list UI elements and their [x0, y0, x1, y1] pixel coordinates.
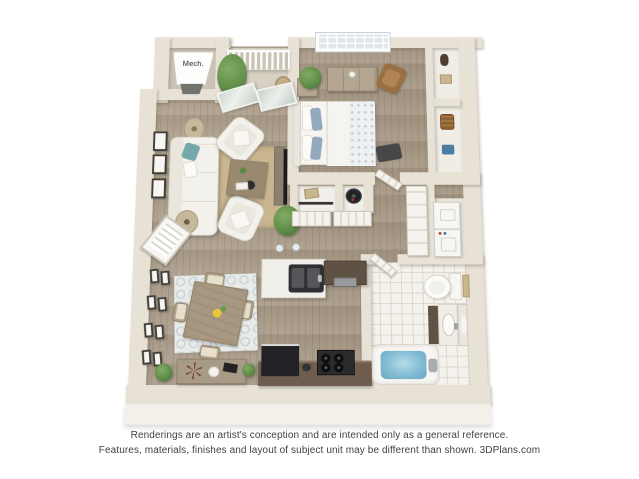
- wall-closet-shelf-divider: [434, 98, 460, 106]
- wall-art-1: [153, 132, 168, 151]
- dining-chair-cushion: [200, 347, 217, 358]
- wall-storage-right: [364, 185, 374, 213]
- closet-statue: [440, 54, 449, 66]
- dresser: [327, 67, 378, 92]
- window-grid: [318, 35, 388, 50]
- bedroom-window: [316, 33, 390, 51]
- stack-seam: [435, 228, 462, 230]
- armchair-top-pillow: [232, 129, 251, 147]
- bed-pillow-blue-2: [310, 136, 323, 160]
- dining-chair-cushion: [175, 303, 186, 319]
- wall-bedroom-bottom-right: [400, 172, 480, 185]
- toilet-seat: [429, 280, 445, 294]
- bathtub: [371, 344, 439, 385]
- towel-on-wall: [462, 275, 470, 298]
- dresser-flowers: [348, 71, 356, 78]
- gallery-frame-2a: [147, 295, 157, 310]
- hallway-tall-door: [406, 186, 429, 256]
- vacuum-red-dot: [351, 198, 354, 201]
- coffee-table-plant: [239, 167, 246, 174]
- drinking-glass-2: [292, 243, 301, 251]
- wall-art-3: [151, 178, 166, 198]
- wall-bedroom-bottom-left: [287, 172, 375, 185]
- gallery-frame-3a: [144, 323, 154, 338]
- stove: [317, 350, 355, 375]
- console-box-decor: [223, 362, 238, 373]
- gallery-frame-1a: [150, 269, 160, 284]
- sofa-pillow-white: [183, 161, 198, 179]
- disclaimer: Renderings are an artist's conception an…: [0, 429, 639, 458]
- console-sphere-decor: [208, 366, 219, 377]
- gallery-frame-1b: [160, 271, 170, 286]
- closet-box: [440, 74, 452, 83]
- refrigerator: [261, 344, 299, 376]
- table-greens: [220, 306, 227, 313]
- gallery-frame-2b: [157, 297, 167, 312]
- washer-dryer-stack: [433, 202, 462, 257]
- nightstand-plant: [299, 67, 321, 89]
- storage-vacuum: [346, 188, 362, 203]
- wall-bottom-front-face: [124, 404, 491, 425]
- vanity-counter: [438, 304, 459, 346]
- washer-door: [441, 238, 457, 252]
- toilet-bowl: [423, 275, 451, 299]
- wall-art-2: [152, 154, 167, 174]
- sink-faucet: [318, 275, 322, 283]
- washer-red-light: [439, 232, 442, 235]
- dining-table: [183, 281, 249, 347]
- bathtub-water: [380, 351, 426, 379]
- wall-storage-mid: [335, 185, 343, 213]
- storage-hanging-rod: [299, 202, 334, 205]
- island-sink: [289, 264, 324, 292]
- storage-closet-door-left: [292, 211, 332, 227]
- bedroom-chair-seat: [381, 68, 402, 88]
- storage-box: [304, 187, 320, 199]
- wall-bottom: [125, 385, 490, 405]
- mirror-reflection: [461, 315, 468, 334]
- microwave: [334, 277, 358, 286]
- mech-label: Mech.: [174, 60, 213, 68]
- disclaimer-line-1: Renderings are an artist's conception an…: [0, 429, 639, 444]
- dryer-door: [440, 209, 456, 221]
- floor-plan: Mech.: [120, 36, 507, 426]
- bed-pillow-blue-1: [310, 108, 323, 132]
- bed-headboard: [294, 102, 301, 166]
- gallery-frame-4a: [142, 349, 152, 364]
- console-starburst-decor: [185, 363, 202, 380]
- washer-blue-light: [443, 232, 446, 235]
- bed: [293, 101, 375, 165]
- console-table: [176, 359, 246, 384]
- storage-closet-door-right: [333, 211, 372, 227]
- counter-utensils: [302, 364, 311, 372]
- tv: [283, 149, 287, 205]
- bathtub-faucet: [428, 359, 437, 373]
- coffee-table: [226, 159, 268, 198]
- sink-basin-left: [292, 268, 305, 288]
- coffee-table-book: [236, 182, 249, 190]
- disclaimer-line-2: Features, materials, finishes and layout…: [0, 444, 639, 459]
- kitchen-cabinet: [324, 261, 367, 285]
- closet-towels: [442, 145, 455, 155]
- gallery-frame-3b: [154, 324, 164, 339]
- drinking-glass-1: [275, 244, 284, 252]
- closet-basket: [440, 114, 455, 130]
- bed-duvet-pattern: [349, 102, 376, 166]
- floorplan-image: Mech.: [0, 0, 639, 479]
- vanity-mirror: [457, 304, 468, 346]
